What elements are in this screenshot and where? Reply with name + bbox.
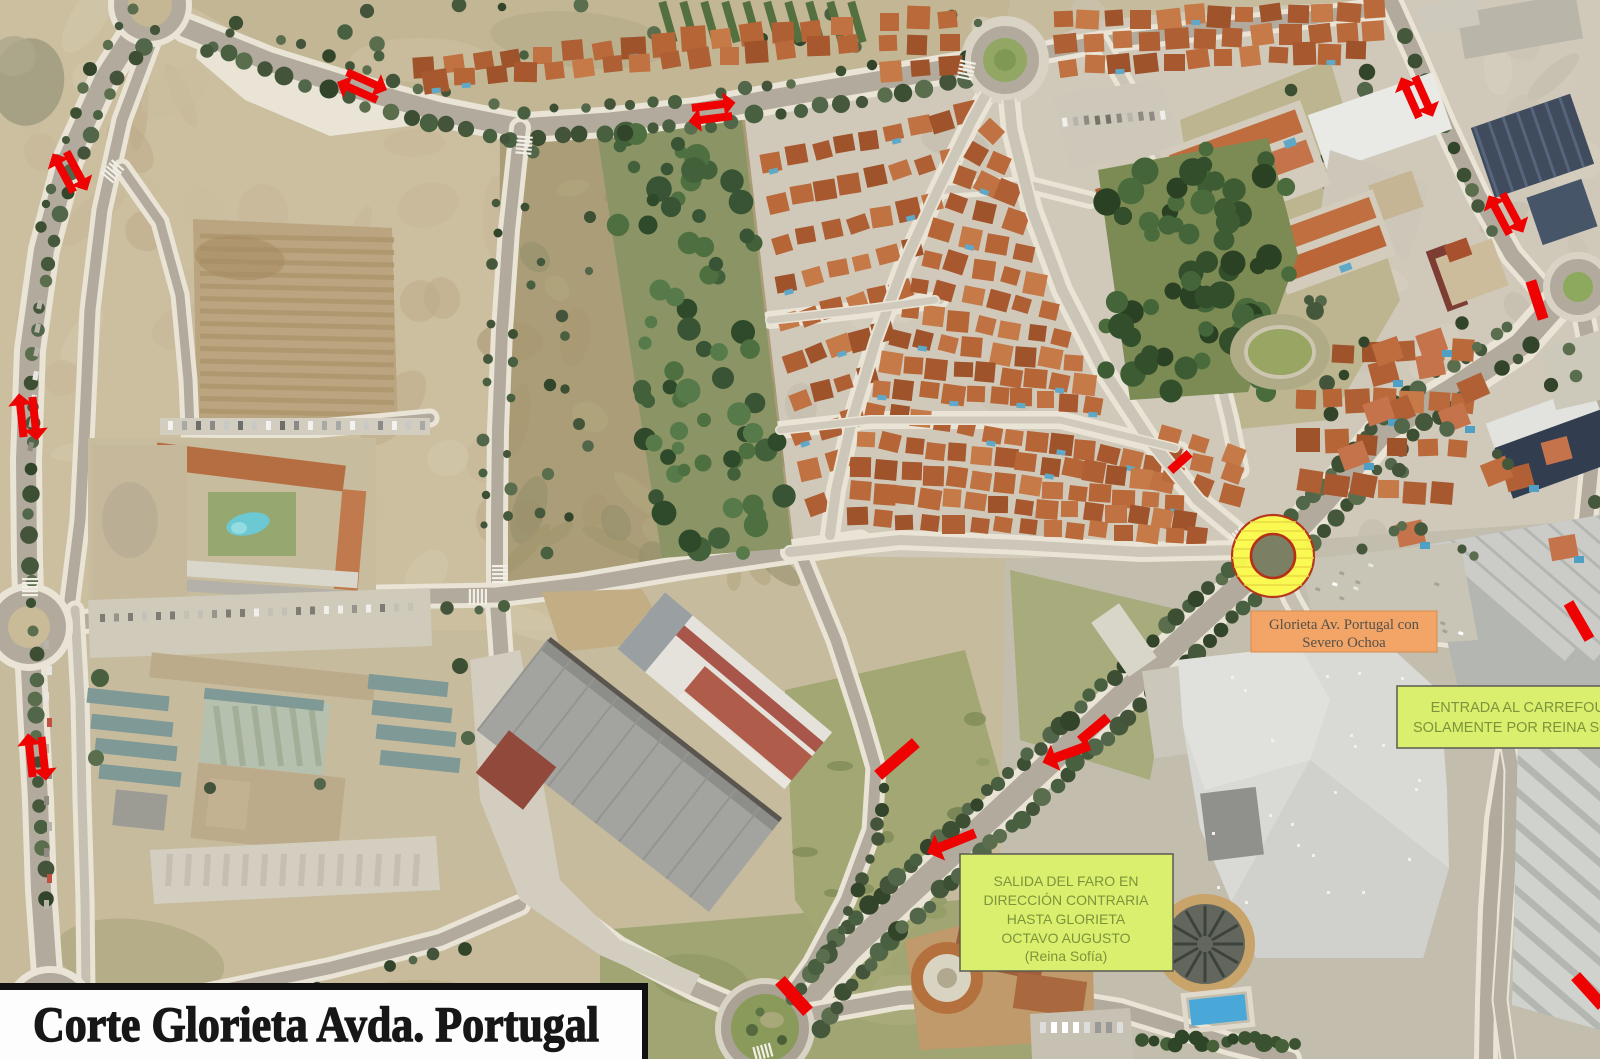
svg-text:Severo Ochoa: Severo Ochoa [1302,635,1386,651]
svg-text:HASTA GLORIETA: HASTA GLORIETA [1007,911,1126,927]
svg-text:ENTRADA AL CARREFOUR: ENTRADA AL CARREFOUR [1431,700,1600,716]
svg-text:SOLAMENTE POR REINA SOFÍA: SOLAMENTE POR REINA SOFÍA [1413,719,1600,736]
svg-text:(Reina Sofía): (Reina Sofía) [1025,948,1107,964]
svg-text:OCTAVO AUGUSTO: OCTAVO AUGUSTO [1001,930,1130,946]
svg-text:Corte Glorieta Avda. Portugal: Corte Glorieta Avda. Portugal [33,996,599,1052]
svg-text:SALIDA DEL FARO EN: SALIDA DEL FARO EN [994,873,1139,889]
svg-text:Glorieta Av. Portugal con: Glorieta Av. Portugal con [1269,617,1420,633]
svg-text:DIRECCIÓN CONTRARIA: DIRECCIÓN CONTRARIA [984,892,1150,908]
